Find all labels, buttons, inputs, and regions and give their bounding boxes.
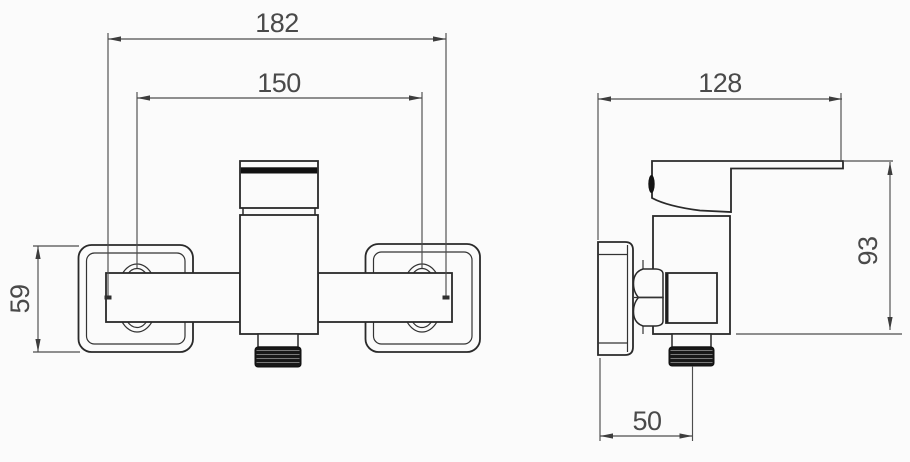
hex-nut — [634, 269, 664, 326]
lever-handle-outline — [652, 161, 843, 212]
inlet-boss-outline — [666, 273, 717, 323]
drawing-canvas: 182 150 59 — [0, 0, 910, 462]
dim-label-128: 128 — [698, 68, 742, 98]
lever-handle-side — [648, 161, 843, 212]
wall-plate-side — [598, 242, 633, 355]
dim-outlet-offset: 50 — [600, 358, 693, 441]
side-view: 128 93 50 — [598, 68, 902, 441]
handle-front-lever-edge — [241, 167, 317, 173]
dim-label-150: 150 — [257, 68, 301, 98]
dim-label-182: 182 — [255, 8, 299, 38]
inlet-boss — [666, 273, 717, 323]
outlet-side — [669, 334, 714, 366]
supply-bar-right — [318, 273, 452, 322]
outlet-neck-front — [258, 334, 298, 347]
dim-label-93: 93 — [853, 236, 883, 265]
dim-escutcheon-height: 59 — [5, 246, 80, 352]
outlet-neck-side — [672, 334, 711, 347]
outlet-front — [255, 334, 301, 367]
front-view: 182 150 59 — [5, 8, 480, 367]
outlet-thread-side — [669, 347, 714, 366]
handle-pivot-detail — [648, 175, 654, 193]
dim-height: 93 — [736, 161, 902, 334]
handle-front — [240, 161, 318, 208]
supply-bar-left — [106, 273, 240, 322]
faucet-technical-drawing: 182 150 59 — [0, 0, 910, 462]
dim-depth: 128 — [598, 68, 842, 240]
dim-label-59: 59 — [5, 284, 35, 313]
dim-label-50: 50 — [632, 406, 661, 436]
mixer-body-front — [240, 215, 318, 334]
